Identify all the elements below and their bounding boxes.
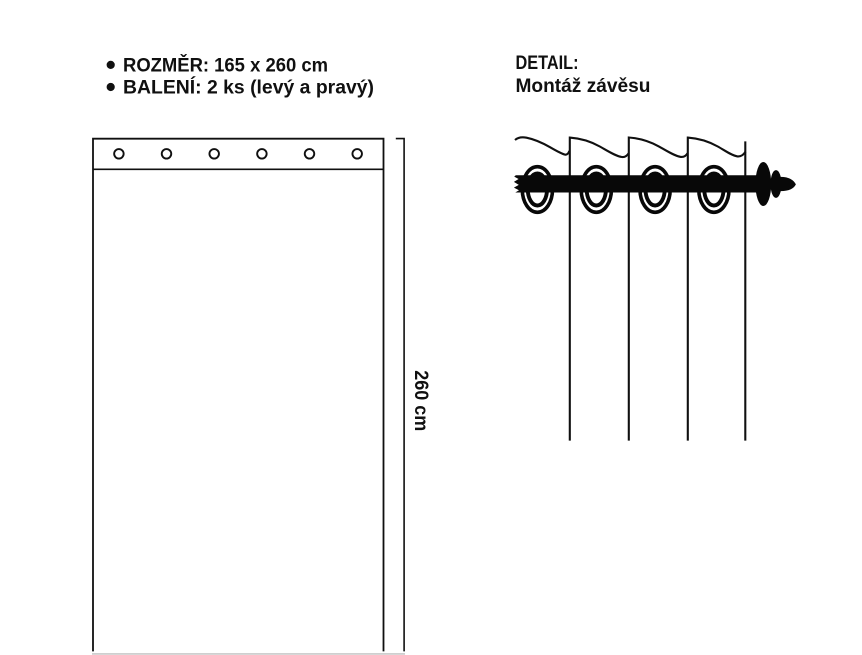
svg-text:BALENÍ: 2 ks (levý a pravý): BALENÍ: 2 ks (levý a pravý)	[123, 75, 374, 98]
svg-text:260 cm: 260 cm	[410, 370, 432, 431]
svg-text:DETAIL:: DETAIL:	[516, 52, 579, 74]
svg-text:ROZMĚR: 165 x 260 cm: ROZMĚR: 165 x 260 cm	[123, 53, 328, 77]
svg-text:Montáž závěsu: Montáž závěsu	[516, 75, 651, 97]
